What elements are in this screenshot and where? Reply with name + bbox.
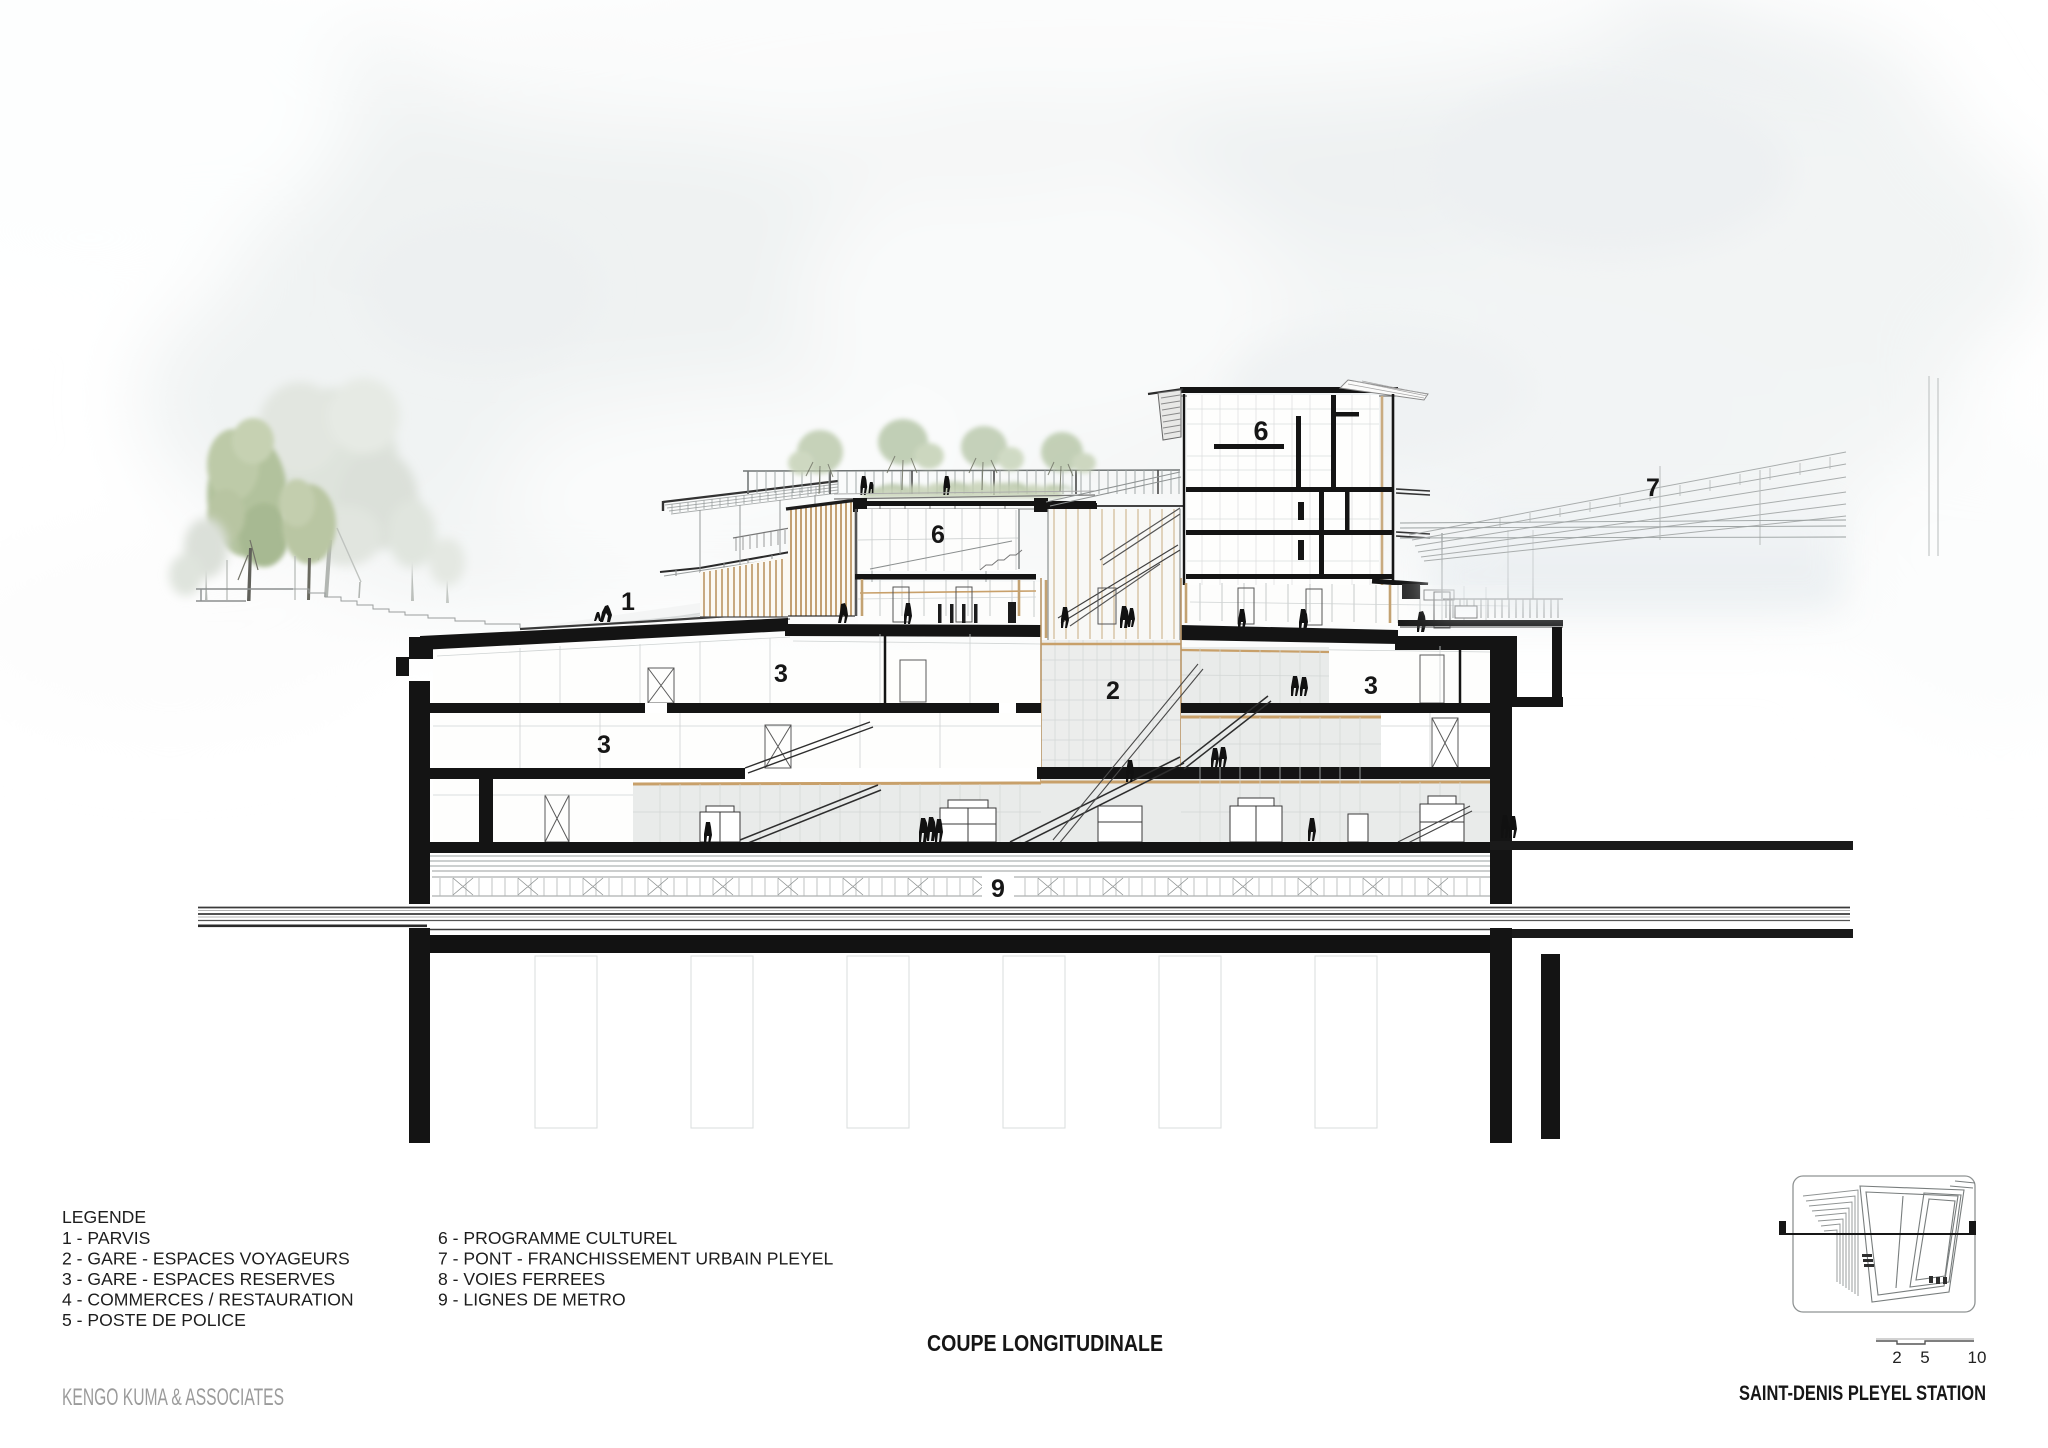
svg-text:7 - PONT - FRANCHISSEMENT URB: 7 - PONT - FRANCHISSEMENT URBAIN PLEYEL — [438, 1249, 834, 1269]
svg-text:6 - PROGRAMME CULTUREL: 6 - PROGRAMME CULTUREL — [438, 1228, 677, 1248]
svg-text:2 - GARE - ESPACES VOYAGEURS: 2 - GARE - ESPACES VOYAGEURS — [62, 1249, 350, 1269]
svg-text:1: 1 — [621, 588, 635, 616]
svg-text:3: 3 — [1364, 672, 1378, 700]
svg-text:COUPE LONGITUDINALE: COUPE LONGITUDINALE — [927, 1330, 1163, 1356]
svg-text:2: 2 — [1892, 1348, 1901, 1367]
svg-text:9 - LIGNES DE METRO: 9 - LIGNES DE METRO — [438, 1290, 626, 1310]
svg-text:SAINT-DENIS PLEYEL STATION: SAINT-DENIS PLEYEL STATION — [1739, 1381, 1986, 1405]
svg-text:5 - POSTE DE POLICE: 5 - POSTE DE POLICE — [62, 1310, 246, 1330]
svg-text:3: 3 — [774, 660, 788, 688]
svg-text:4 - COMMERCES / RESTAURATION: 4 - COMMERCES / RESTAURATION — [62, 1290, 354, 1310]
svg-text:3: 3 — [597, 731, 611, 759]
svg-text:8 - VOIES FERREES: 8 - VOIES FERREES — [438, 1269, 605, 1289]
svg-text:10: 10 — [1968, 1348, 1987, 1367]
svg-text:KENGO KUMA & ASSOCIATES: KENGO KUMA & ASSOCIATES — [62, 1384, 284, 1411]
svg-text:1 - PARVIS: 1 - PARVIS — [62, 1228, 150, 1248]
svg-text:2: 2 — [1106, 677, 1120, 705]
svg-text:LEGENDE: LEGENDE — [62, 1207, 146, 1227]
svg-text:3 - GARE - ESPACES RESERVES: 3 - GARE - ESPACES RESERVES — [62, 1269, 335, 1289]
svg-text:6: 6 — [1253, 416, 1268, 446]
svg-text:7: 7 — [1646, 474, 1660, 502]
svg-text:6: 6 — [931, 521, 945, 549]
svg-text:9: 9 — [991, 875, 1005, 903]
svg-text:5: 5 — [1920, 1348, 1929, 1367]
